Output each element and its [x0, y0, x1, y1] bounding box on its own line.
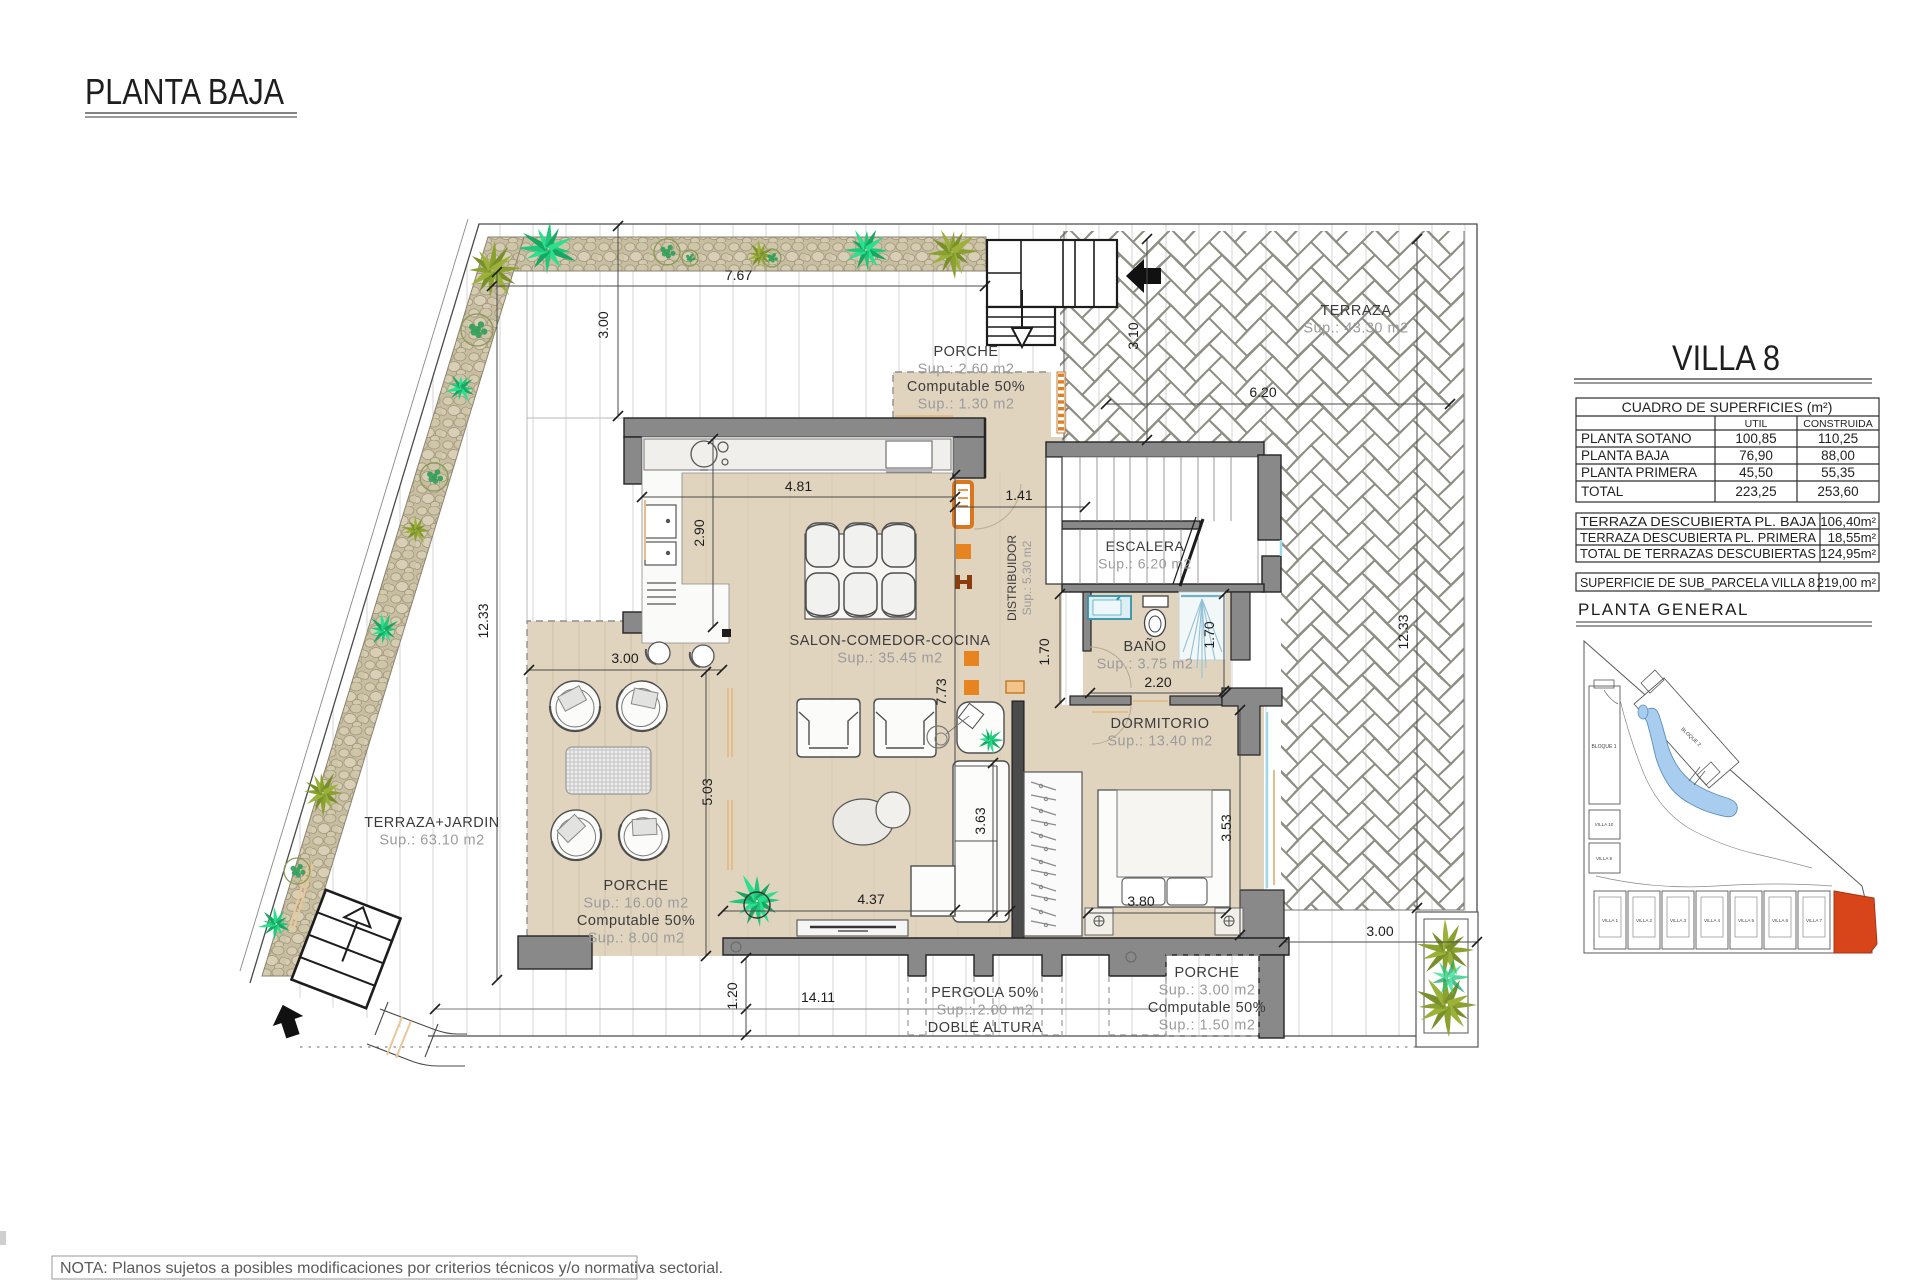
svg-text:Sup.: 6.20 m2: Sup.: 6.20 m2 [1098, 556, 1192, 572]
svg-text:Computable 50%: Computable 50% [1148, 1000, 1266, 1016]
svg-text:Sup.: 1.50 m2: Sup.: 1.50 m2 [1159, 1018, 1256, 1034]
svg-text:2.90: 2.90 [691, 519, 707, 546]
svg-text:TOTAL DE TERRAZAS DESCUBIERTAS: TOTAL DE TERRAZAS DESCUBIERTAS [1580, 546, 1816, 561]
svg-text:CUADRO DE SUPERFICIES (m²): CUADRO DE SUPERFICIES (m²) [1622, 399, 1833, 415]
svg-text:TERRAZA+JARDIN: TERRAZA+JARDIN [364, 815, 500, 831]
svg-text:VILLA 4: VILLA 4 [1704, 918, 1721, 923]
svg-text:4.81: 4.81 [785, 478, 812, 494]
svg-text:18,55m²: 18,55m² [1828, 530, 1877, 545]
svg-text:CONSTRUIDA: CONSTRUIDA [1803, 418, 1872, 430]
svg-text:7.67: 7.67 [725, 267, 752, 283]
svg-text:VILLA 5: VILLA 5 [1738, 918, 1755, 923]
svg-text:TERRAZA: TERRAZA [1320, 303, 1391, 319]
svg-text:219,00 m²: 219,00 m² [1817, 575, 1877, 590]
svg-text:223,25: 223,25 [1735, 484, 1776, 499]
svg-text:SALON-COMEDOR-COCINA: SALON-COMEDOR-COCINA [790, 633, 991, 649]
svg-text:PORCHE: PORCHE [933, 344, 998, 360]
svg-text:7.73: 7.73 [933, 678, 949, 705]
svg-text:UTIL: UTIL [1745, 418, 1768, 430]
svg-text:BAÑO: BAÑO [1123, 638, 1166, 655]
svg-text:4.37: 4.37 [857, 891, 884, 907]
svg-text:Sup.: 3.75 m2: Sup.: 3.75 m2 [1097, 657, 1194, 673]
svg-text:DISTRIBUIDOR: DISTRIBUIDOR [1005, 535, 1019, 621]
svg-text:VILLA 10: VILLA 10 [1595, 822, 1614, 827]
svg-text:BLOQUE 1: BLOQUE 1 [1591, 744, 1616, 750]
svg-text:12.33: 12.33 [475, 603, 491, 638]
svg-text:PLANTA PRIMERA: PLANTA PRIMERA [1581, 465, 1697, 480]
svg-text:Computable 50%: Computable 50% [907, 379, 1025, 395]
svg-text:2.20: 2.20 [1144, 674, 1171, 690]
svg-text:1.70: 1.70 [1036, 638, 1052, 665]
svg-text:VILLA 6: VILLA 6 [1772, 918, 1789, 923]
svg-text:Sup.: 8.00 m2: Sup.: 8.00 m2 [588, 931, 685, 947]
svg-text:Sup.: 16.00 m2: Sup.: 16.00 m2 [583, 896, 688, 912]
svg-text:TERRAZA DESCUBIERTA PL. PRIMER: TERRAZA DESCUBIERTA PL. PRIMERA [1580, 530, 1816, 545]
svg-text:1.20: 1.20 [724, 982, 740, 1009]
svg-text:Sup.: 43.30 m2: Sup.: 43.30 m2 [1303, 321, 1408, 337]
svg-text:100,85: 100,85 [1735, 431, 1776, 446]
svg-text:106,40m²: 106,40m² [1820, 514, 1876, 529]
svg-text:VILLA 2: VILLA 2 [1636, 918, 1653, 923]
svg-text:1.41: 1.41 [1005, 487, 1032, 503]
svg-text:NOTA: Planos sujetos a posible: NOTA: Planos sujetos a posibles modifica… [60, 1260, 723, 1277]
svg-text:6.20: 6.20 [1249, 384, 1276, 400]
svg-text:3.10: 3.10 [1125, 322, 1141, 349]
svg-text:Sup.: 3.00 m2: Sup.: 3.00 m2 [1159, 983, 1256, 999]
svg-text:45,50: 45,50 [1739, 465, 1773, 480]
svg-text:PLANTA BAJA: PLANTA BAJA [85, 71, 284, 112]
svg-text:88,00: 88,00 [1821, 448, 1855, 463]
svg-text:PORCHE: PORCHE [1174, 965, 1239, 981]
svg-text:PLANTA SOTANO: PLANTA SOTANO [1581, 431, 1692, 446]
svg-text:VILLA 1: VILLA 1 [1602, 918, 1619, 923]
svg-text:5.03: 5.03 [699, 778, 715, 805]
svg-text:Computable 50%: Computable 50% [577, 913, 695, 929]
svg-text:VILLA 8: VILLA 8 [1672, 339, 1780, 378]
svg-text:VILLA 7: VILLA 7 [1806, 918, 1823, 923]
svg-text:253,60: 253,60 [1817, 484, 1858, 499]
svg-text:PLANTA BAJA: PLANTA BAJA [1581, 448, 1669, 463]
svg-text:Sup.: 1.30 m2: Sup.: 1.30 m2 [918, 397, 1015, 413]
svg-text:110,25: 110,25 [1818, 431, 1858, 446]
svg-text:Sup.: 63.10 m2: Sup.: 63.10 m2 [379, 833, 484, 849]
svg-text:Sup.: 2.60 m2: Sup.: 2.60 m2 [918, 362, 1015, 378]
svg-text:3.00: 3.00 [595, 311, 611, 338]
svg-text:DOBLE ALTURA: DOBLE ALTURA [928, 1020, 1043, 1036]
svg-text:3.63: 3.63 [972, 807, 988, 834]
svg-text:VILLA 9: VILLA 9 [1596, 856, 1613, 861]
svg-text:12.33: 12.33 [1395, 614, 1411, 649]
svg-text:ESCALERA: ESCALERA [1106, 538, 1185, 554]
svg-text:3.80: 3.80 [1127, 893, 1154, 909]
svg-text:Sup.: 5.30 m2: Sup.: 5.30 m2 [1020, 540, 1034, 615]
svg-text:TERRAZA DESCUBIERTA PL. BAJA: TERRAZA DESCUBIERTA PL. BAJA [1580, 514, 1816, 529]
svg-text:Sup.: 35.45 m2: Sup.: 35.45 m2 [837, 651, 942, 667]
svg-text:PERGOLA 50%: PERGOLA 50% [931, 985, 1039, 1001]
svg-text:DORMITORIO: DORMITORIO [1111, 716, 1210, 732]
svg-text:TOTAL: TOTAL [1581, 484, 1624, 499]
svg-text:124,95m²: 124,95m² [1820, 546, 1876, 561]
svg-text:3.00: 3.00 [1366, 923, 1393, 939]
svg-text:Sup.: 13.40 m2: Sup.: 13.40 m2 [1107, 734, 1212, 750]
svg-text:55,35: 55,35 [1821, 465, 1855, 480]
svg-text:3.53: 3.53 [1218, 814, 1234, 841]
svg-text:14.11: 14.11 [801, 989, 835, 1005]
svg-text:PORCHE: PORCHE [603, 878, 668, 894]
svg-text:1.70: 1.70 [1201, 621, 1217, 648]
svg-text:3.00: 3.00 [611, 650, 638, 666]
svg-text:SUPERFICIE DE SUB_PARCELA VILL: SUPERFICIE DE SUB_PARCELA VILLA 8 [1580, 575, 1815, 590]
svg-text:VILLA 3: VILLA 3 [1670, 918, 1687, 923]
svg-text:PLANTA GENERAL: PLANTA GENERAL [1578, 600, 1749, 619]
svg-text:Sup.: 2.00 m2: Sup.: 2.00 m2 [937, 1003, 1034, 1019]
svg-text:76,90: 76,90 [1739, 448, 1773, 463]
